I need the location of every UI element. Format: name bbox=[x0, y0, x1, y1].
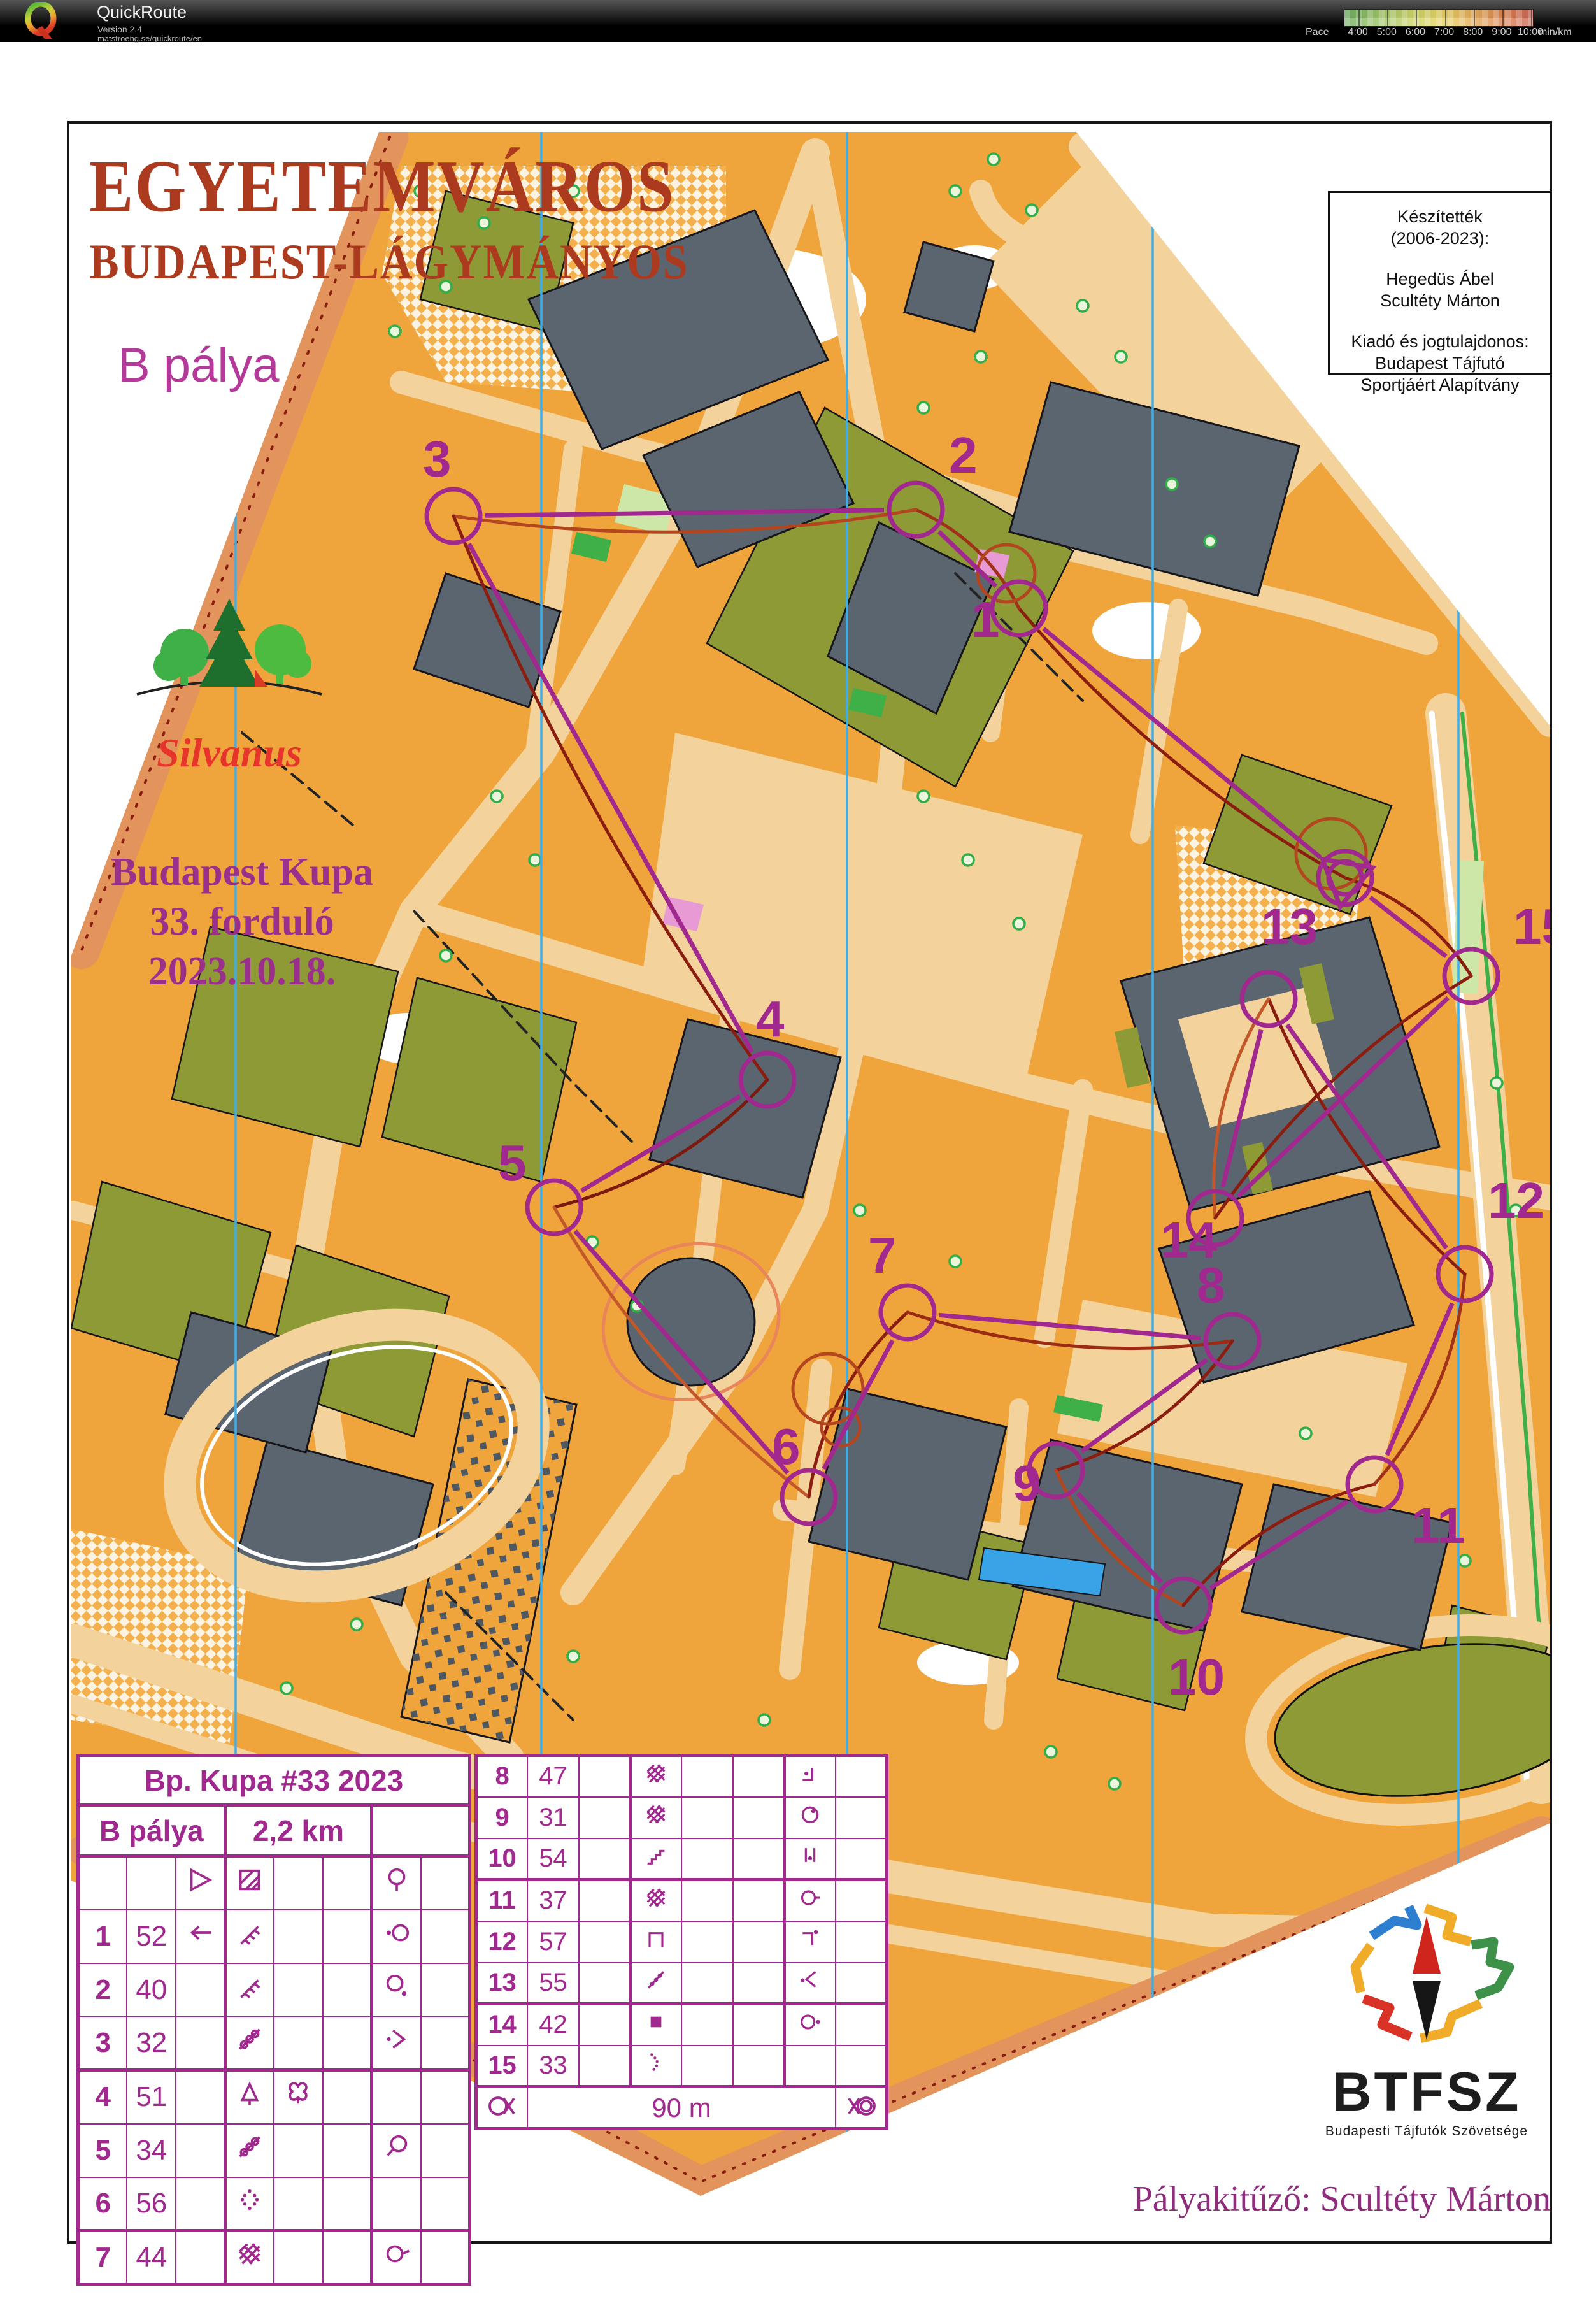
cd-cell bbox=[323, 2177, 372, 2231]
cd-cell: 55 bbox=[527, 1963, 579, 2004]
cd-cell bbox=[372, 2231, 421, 2284]
cd-cell bbox=[421, 2231, 470, 2284]
cd-cell bbox=[372, 2070, 421, 2124]
map-control-number: 4 bbox=[756, 991, 785, 1047]
cd-cell: 42 bbox=[527, 2004, 579, 2046]
bush-icon bbox=[283, 2079, 313, 2109]
credits-paragraph: Kiadó és jogtulajdonos: Budapest Tájfutó… bbox=[1330, 331, 1550, 396]
cd-cell bbox=[421, 1963, 470, 2017]
cd-cell bbox=[836, 1963, 887, 2004]
cd-cell bbox=[784, 1756, 836, 1797]
cd-cell bbox=[681, 1797, 733, 1838]
cd-finish-distance: 90 m bbox=[527, 2087, 836, 2129]
crosshatch-icon bbox=[643, 1802, 669, 1827]
control-code: 37 bbox=[539, 1886, 567, 1914]
control-num: 9 bbox=[495, 1803, 509, 1831]
cd-cell bbox=[127, 1856, 176, 1910]
cd-cell: 51 bbox=[127, 2070, 176, 2124]
cd-cell: 10 bbox=[476, 1838, 528, 1880]
cd-finish-left bbox=[476, 2087, 528, 2129]
cd-cell bbox=[681, 1963, 733, 2004]
cd-cell: 2 bbox=[78, 1963, 127, 2017]
cd-cell bbox=[421, 2124, 470, 2177]
cd-cell: 4 bbox=[78, 2070, 127, 2124]
cd-cell bbox=[579, 1797, 631, 1838]
cd-cell bbox=[733, 1880, 785, 1921]
control-code: 44 bbox=[136, 2242, 167, 2273]
cd-cell bbox=[372, 1963, 421, 2017]
cd-cell bbox=[274, 2231, 323, 2284]
control-num: 6 bbox=[95, 2188, 110, 2219]
cd-cell bbox=[274, 2017, 323, 2070]
cd-cell bbox=[733, 1797, 785, 1838]
building-icon bbox=[643, 2009, 669, 2035]
cd-cell: 34 bbox=[127, 2124, 176, 2177]
cd-cell bbox=[836, 1838, 887, 1880]
control-descriptions-right: 84793110541137125713551442153390 m bbox=[474, 1754, 888, 2130]
cd-cell bbox=[176, 1910, 225, 1963]
cd-title: Bp. Kupa #33 2023 bbox=[78, 1756, 470, 1805]
control-code: 52 bbox=[136, 1921, 167, 1952]
cd-cell bbox=[836, 1797, 887, 1838]
stairs-icon bbox=[643, 1842, 669, 1868]
cd-cell: 11 bbox=[476, 1880, 528, 1921]
control-code: 51 bbox=[136, 2081, 167, 2112]
cd-cell bbox=[784, 2004, 836, 2046]
cd-cell bbox=[681, 1880, 733, 1921]
map-control-number: 5 bbox=[498, 1135, 527, 1191]
cd-cell: 57 bbox=[527, 1921, 579, 1963]
dot-circle-icon bbox=[382, 1918, 411, 1947]
cd-cell bbox=[274, 1910, 323, 1963]
cd-cell bbox=[836, 2046, 887, 2087]
course-name: B pálya bbox=[118, 338, 280, 393]
circle-dot-in-ne-icon bbox=[797, 1802, 823, 1827]
cd-cell bbox=[323, 2124, 372, 2177]
cd-cell bbox=[681, 2004, 733, 2046]
control-num: 10 bbox=[488, 1844, 517, 1872]
circle-tail-e-icon bbox=[382, 2239, 411, 2268]
cd-cell: 14 bbox=[476, 2004, 528, 2046]
cd-cell bbox=[323, 2231, 372, 2284]
control-num: 1 bbox=[95, 1921, 110, 1952]
cd-cell bbox=[836, 1880, 887, 1921]
bars-dot-icon bbox=[797, 1842, 823, 1868]
crosshatch-icon bbox=[235, 2239, 264, 2268]
control-num: 13 bbox=[488, 1968, 517, 1996]
dot-cluster-icon bbox=[235, 2185, 264, 2214]
cd-cell bbox=[372, 2124, 421, 2177]
map-control-number: 11 bbox=[1411, 1497, 1465, 1554]
steps-icon bbox=[235, 1972, 264, 2001]
cd-table-left: Bp. Kupa #33 2023B pálya2,2 km1522403324… bbox=[76, 1754, 471, 2286]
cd-cell bbox=[579, 2004, 631, 2046]
cd-cell: 31 bbox=[527, 1797, 579, 1838]
cd-cell bbox=[733, 1963, 785, 2004]
cd-cell bbox=[630, 2004, 681, 2046]
start-triangle-icon bbox=[185, 1865, 215, 1895]
cd-cell: 13 bbox=[476, 1963, 528, 2004]
cd-cell bbox=[421, 2177, 470, 2231]
cd-cell bbox=[421, 2070, 470, 2124]
cd-cell bbox=[372, 2177, 421, 2231]
cd-cell bbox=[274, 2124, 323, 2177]
cd-cell bbox=[733, 2004, 785, 2046]
cd-cell bbox=[784, 1880, 836, 1921]
taped-route-start-icon bbox=[487, 2091, 518, 2121]
cd-cell bbox=[274, 1856, 323, 1910]
control-num: 7 bbox=[95, 2242, 110, 2273]
cd-cell bbox=[630, 1797, 681, 1838]
cd-cell bbox=[784, 1797, 836, 1838]
cd-cell bbox=[225, 2070, 274, 2124]
cd-cell bbox=[681, 1921, 733, 1963]
cd-cell: 1 bbox=[78, 1910, 127, 1963]
silvanus-logo: Silvanus bbox=[124, 592, 334, 777]
fence-dots-icon bbox=[643, 1967, 669, 1992]
wall-circles-icon bbox=[235, 2025, 264, 2054]
map-control-number: 10 bbox=[1168, 1649, 1225, 1705]
cd-cell bbox=[225, 1963, 274, 2017]
btfsz-abbr: BTFSZ bbox=[1299, 2061, 1554, 2124]
cd-cell: 37 bbox=[527, 1880, 579, 1921]
control-num: 4 bbox=[95, 2081, 110, 2112]
event-info: Budapest Kupa 33. forduló 2023.10.18. bbox=[80, 847, 404, 996]
cd-cell bbox=[784, 1838, 836, 1880]
control-code: 56 bbox=[136, 2188, 167, 2219]
event-name: Budapest Kupa bbox=[80, 847, 404, 897]
cd-cell bbox=[630, 1880, 681, 1921]
map-title-line1: EGYETEMVÁROS bbox=[89, 150, 726, 224]
cd-cell: 52 bbox=[127, 1910, 176, 1963]
cd-cell bbox=[176, 1963, 225, 2017]
credits-box: Készítették (2006-2023):Hegedüs Ábel Scu… bbox=[1328, 191, 1552, 375]
cd-cell bbox=[421, 1910, 470, 1963]
map-control-number: 1 bbox=[971, 591, 1000, 648]
cd-table-right: 84793110541137125713551442153390 m bbox=[474, 1754, 888, 2130]
cd-cell bbox=[836, 2004, 887, 2046]
cd-cell bbox=[372, 2017, 421, 2070]
cd-cell bbox=[274, 2070, 323, 2124]
cd-cell bbox=[630, 1921, 681, 1963]
conifer-icon bbox=[235, 2079, 264, 2109]
dot-chevron-w-icon bbox=[797, 1967, 823, 1992]
canopy-icon bbox=[643, 1926, 669, 1951]
crosshatch-icon bbox=[643, 1761, 669, 1786]
cd-cell bbox=[323, 1910, 372, 1963]
cd-cell bbox=[176, 2177, 225, 2231]
cd-cell bbox=[225, 2017, 274, 2070]
control-code: 31 bbox=[539, 1803, 567, 1831]
control-code: 34 bbox=[136, 2135, 167, 2166]
cd-cell bbox=[176, 2070, 225, 2124]
cd-cell bbox=[733, 1838, 785, 1880]
cd-cell bbox=[225, 2177, 274, 2231]
cd-cell bbox=[784, 1921, 836, 1963]
map-control-number: 6 bbox=[772, 1418, 801, 1475]
arrow-left-icon bbox=[185, 1918, 215, 1947]
cd-cell: 54 bbox=[527, 1838, 579, 1880]
cd-cell bbox=[733, 1921, 785, 1963]
cd-cell bbox=[579, 2046, 631, 2087]
map-control-number: 3 bbox=[423, 431, 452, 487]
cd-cell bbox=[836, 1921, 887, 1963]
cd-course: B pálya bbox=[78, 1805, 225, 1856]
dotted-bend-icon bbox=[643, 2049, 669, 2075]
circle-dash-e-icon bbox=[797, 1885, 823, 1910]
cd-cell bbox=[176, 2124, 225, 2177]
control-num: 5 bbox=[95, 2135, 110, 2166]
control-code: 42 bbox=[539, 2010, 567, 2039]
cd-cell bbox=[733, 1756, 785, 1797]
cd-cell bbox=[372, 1856, 421, 1910]
wall-circles-icon bbox=[235, 2132, 264, 2161]
circle-dot-e-icon bbox=[797, 2009, 823, 2035]
map-control-number: 12 bbox=[1488, 1172, 1544, 1229]
cd-cell bbox=[630, 1963, 681, 2004]
cd-cell bbox=[225, 1856, 274, 1910]
cd-cell bbox=[274, 2177, 323, 2231]
cd-cell bbox=[630, 1838, 681, 1880]
cd-cell bbox=[579, 1963, 631, 2004]
cd-cell: 15 bbox=[476, 2046, 528, 2087]
circle-tail-s-icon bbox=[382, 1865, 411, 1895]
map-title-block: EGYETEMVÁROS BUDAPEST-LÁGYMÁNYOS bbox=[89, 150, 726, 282]
map-control-number: 7 bbox=[868, 1227, 897, 1284]
cd-cell: 9 bbox=[476, 1797, 528, 1838]
btfsz-emblem-icon bbox=[1299, 1898, 1554, 2058]
cd-cell bbox=[323, 2070, 372, 2124]
cd-cell bbox=[733, 2046, 785, 2087]
control-num: 12 bbox=[488, 1928, 517, 1956]
map-control-number: 9 bbox=[1013, 1455, 1041, 1512]
event-round: 33. forduló bbox=[80, 897, 404, 947]
control-code: 57 bbox=[539, 1928, 567, 1956]
cd-cell bbox=[421, 2017, 470, 2070]
cd-cell bbox=[681, 1838, 733, 1880]
cd-cell: 44 bbox=[127, 2231, 176, 2284]
map-control-number: 13 bbox=[1261, 898, 1318, 955]
cd-cell bbox=[78, 1856, 127, 1910]
cd-cell bbox=[323, 1963, 372, 2017]
cd-cell bbox=[323, 2017, 372, 2070]
cd-cell bbox=[176, 1856, 225, 1910]
cd-cell bbox=[630, 2046, 681, 2087]
credits-paragraph: Hegedüs Ábel Scultéty Márton bbox=[1330, 268, 1550, 312]
map-control-number: 14 bbox=[1160, 1212, 1217, 1268]
btfsz-full-name: Budapesti Tájfutók Szövetsége bbox=[1299, 2124, 1554, 2139]
control-num: 15 bbox=[488, 2051, 517, 2079]
map-title-line2: BUDAPEST-LÁGYMÁNYOS bbox=[89, 238, 726, 287]
map-control-number: 2 bbox=[949, 427, 978, 484]
event-date: 2023.10.18. bbox=[80, 947, 404, 996]
cd-cell: 8 bbox=[476, 1756, 528, 1797]
cd-cell: 12 bbox=[476, 1921, 528, 1963]
silvanus-wordmark: Silvanus bbox=[124, 729, 334, 777]
cd-cell bbox=[372, 1910, 421, 1963]
cd-length: 2,2 km bbox=[225, 1805, 372, 1856]
cd-cell bbox=[681, 1756, 733, 1797]
cd-cell bbox=[836, 1756, 887, 1797]
cd-cell bbox=[421, 1856, 470, 1910]
cd-cell bbox=[225, 2124, 274, 2177]
control-num: 3 bbox=[95, 2027, 110, 2058]
circle-dot-se-icon bbox=[382, 1972, 411, 2001]
cd-cell bbox=[579, 1756, 631, 1797]
control-descriptions-left: Bp. Kupa #33 2023B pálya2,2 km1522403324… bbox=[76, 1754, 471, 2286]
corner-se-dot-icon bbox=[797, 1761, 823, 1786]
corner-ne-dot-icon bbox=[797, 1926, 823, 1951]
cd-cell: 56 bbox=[127, 2177, 176, 2231]
cd-cell: 33 bbox=[527, 2046, 579, 2087]
cd-cell: 47 bbox=[527, 1756, 579, 1797]
cd-cell: 6 bbox=[78, 2177, 127, 2231]
cd-cell bbox=[225, 2231, 274, 2284]
steps-icon bbox=[235, 1918, 264, 1947]
cd-cell: 40 bbox=[127, 1963, 176, 2017]
cd-cell bbox=[784, 2046, 836, 2087]
control-num: 8 bbox=[495, 1762, 509, 1790]
control-code: 33 bbox=[539, 2051, 567, 2079]
cd-finish-right bbox=[836, 2087, 887, 2129]
crosshatch-icon bbox=[643, 1885, 669, 1910]
taped-finish-icon bbox=[845, 2091, 876, 2121]
cd-cell bbox=[579, 1838, 631, 1880]
paved-hatch-icon bbox=[235, 1865, 264, 1895]
control-num: 14 bbox=[488, 2010, 517, 2039]
control-code: 40 bbox=[136, 1974, 167, 2005]
cd-cell: 7 bbox=[78, 2231, 127, 2284]
cd-cell bbox=[176, 2231, 225, 2284]
control-num: 2 bbox=[95, 1974, 110, 2005]
map-control-number: 15 bbox=[1513, 898, 1570, 955]
silvanus-trees-icon bbox=[124, 592, 334, 726]
chevron-e-dot-icon bbox=[382, 2025, 411, 2054]
control-code: 55 bbox=[539, 1968, 567, 1996]
cd-cell bbox=[274, 1963, 323, 2017]
cd-cell bbox=[784, 1963, 836, 2004]
cd-cell bbox=[176, 2017, 225, 2070]
cd-cell bbox=[579, 1880, 631, 1921]
cd-blank bbox=[372, 1805, 470, 1856]
course-setter: Pályakitűző: Scultéty Márton bbox=[923, 2179, 1551, 2219]
control-code: 54 bbox=[539, 1844, 567, 1872]
circle-tail-sw-icon bbox=[382, 2132, 411, 2161]
cd-cell: 5 bbox=[78, 2124, 127, 2177]
control-num: 11 bbox=[488, 1886, 515, 1914]
cd-cell: 32 bbox=[127, 2017, 176, 2070]
cd-cell bbox=[323, 1856, 372, 1910]
control-code: 32 bbox=[136, 2027, 167, 2058]
cd-cell bbox=[681, 2046, 733, 2087]
credits-paragraph: Készítették (2006-2023): bbox=[1330, 206, 1550, 249]
btfsz-logo: BTFSZ Budapesti Tájfutók Szövetsége bbox=[1299, 1898, 1554, 2139]
cd-cell bbox=[630, 1756, 681, 1797]
control-code: 47 bbox=[539, 1762, 567, 1790]
cd-cell bbox=[225, 1910, 274, 1963]
cd-cell: 3 bbox=[78, 2017, 127, 2070]
cd-cell bbox=[579, 1921, 631, 1963]
